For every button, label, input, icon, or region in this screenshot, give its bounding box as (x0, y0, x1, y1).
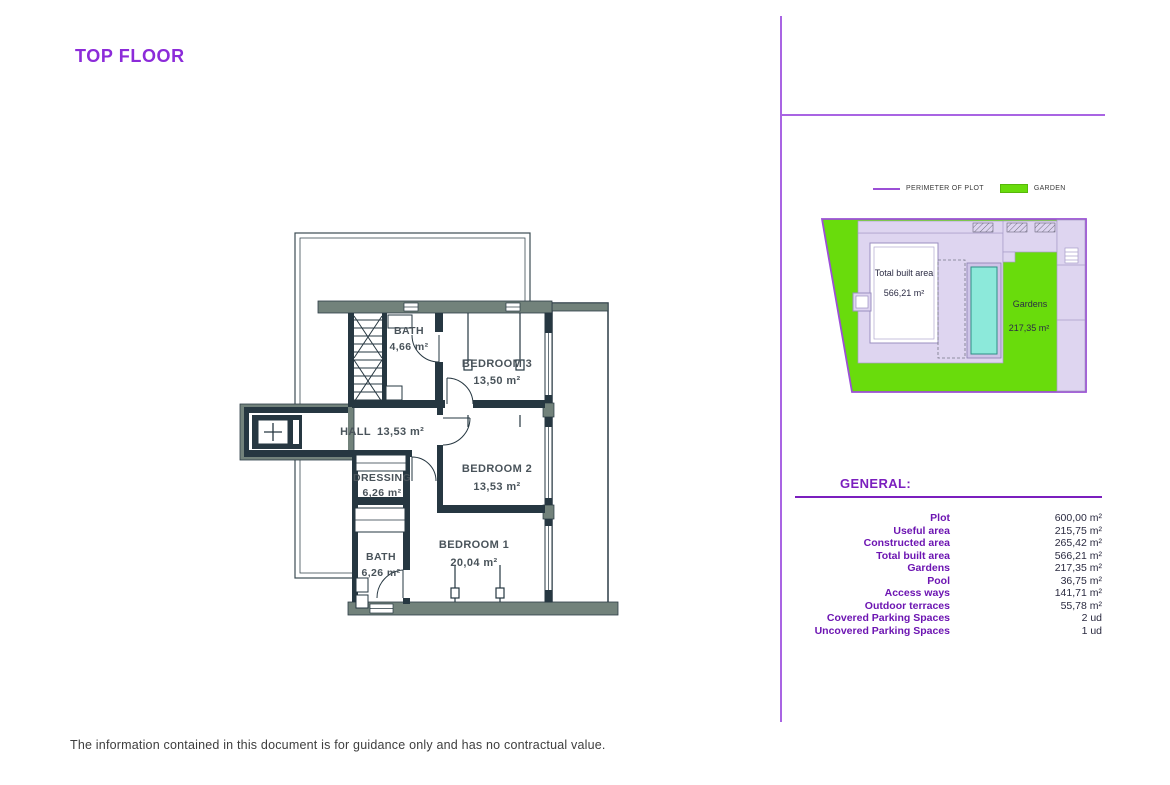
horizontal-divider-line (780, 114, 1105, 116)
garden-rect-swatch (1000, 184, 1028, 193)
row-value: 2 ud (950, 612, 1102, 625)
row-value: 215,75 m² (950, 525, 1102, 538)
window-wall (543, 313, 554, 602)
table-row: Constructed area265,42 m² (795, 537, 1102, 550)
site-plan-legend: PERIMETER OF PLOT GARDEN (873, 184, 1066, 193)
general-rows: Plot600,00 m² Useful area215,75 m² Const… (795, 512, 1102, 637)
table-row: Plot600,00 m² (795, 512, 1102, 525)
page-title: TOP FLOOR (75, 46, 185, 67)
room-area-bedroom3: 13,50 m² (473, 375, 520, 387)
general-heading: GENERAL: (795, 476, 1102, 491)
room-label-hall: HALL (340, 426, 371, 438)
row-label: Outdoor terraces (795, 600, 950, 613)
table-row: Pool36,75 m² (795, 575, 1102, 588)
table-row: Access ways141,71 m² (795, 587, 1102, 600)
row-label: Total built area (795, 550, 950, 563)
table-row: Gardens217,35 m² (795, 562, 1102, 575)
row-value: 566,21 m² (950, 550, 1102, 563)
row-value: 265,42 m² (950, 537, 1102, 550)
room-area-bath-bottom: 6,26 m² (362, 567, 401, 579)
gardens-value: 217,35 m² (1009, 323, 1050, 333)
legend-item-perimeter: PERIMETER OF PLOT (873, 185, 984, 192)
room-area-bedroom1: 20,04 m² (450, 557, 497, 569)
legend-label: GARDEN (1034, 185, 1066, 192)
document-page: { "page": { "title": "TOP FLOOR", "foote… (0, 0, 1170, 785)
room-area-hall: 13,53 m² (377, 426, 424, 438)
row-label: Plot (795, 512, 950, 525)
built-area-value: 566,21 m² (884, 288, 925, 298)
room-area-bath-top: 4,66 m² (390, 341, 429, 353)
row-label: Constructed area (795, 537, 950, 550)
room-label-bath-bottom: BATH (366, 551, 396, 563)
elevator (252, 415, 302, 449)
row-value: 600,00 m² (950, 512, 1102, 525)
general-section: GENERAL: Plot600,00 m² Useful area215,75… (795, 476, 1102, 637)
row-value: 36,75 m² (950, 575, 1102, 588)
table-row: Uncovered Parking Spaces1 ud (795, 625, 1102, 638)
row-label: Useful area (795, 525, 950, 538)
row-label: Access ways (795, 587, 950, 600)
room-label-dressing: DRESSING (353, 472, 411, 484)
hall-wing (240, 404, 354, 460)
site-plan: Total built area 566,21 m² Gardens 217,3… (815, 210, 1095, 400)
perimeter-line-swatch (873, 188, 900, 190)
row-value: 217,35 m² (950, 562, 1102, 575)
room-label-bath-top: BATH (394, 325, 424, 337)
general-heading-rule (795, 496, 1102, 498)
floor-plan: BATH 4,66 m² BEDROOM 3 13,50 m² HALL 13,… (230, 225, 630, 630)
legend-item-garden: GARDEN (1000, 184, 1066, 193)
pool (967, 263, 1001, 358)
pergolas (973, 223, 1055, 232)
row-value: 141,71 m² (950, 587, 1102, 600)
table-row: Covered Parking Spaces2 ud (795, 612, 1102, 625)
table-row: Outdoor terraces55,78 m² (795, 600, 1102, 613)
table-row: Total built area566,21 m² (795, 550, 1102, 563)
row-value: 1 ud (950, 625, 1102, 638)
built-area-label: Total built area (875, 268, 934, 278)
room-area-bedroom2: 13,53 m² (473, 481, 520, 493)
disclaimer-text: The information contained in this docume… (70, 738, 606, 752)
room-area-dressing: 6,26 m² (363, 487, 402, 499)
row-label: Uncovered Parking Spaces (795, 625, 950, 638)
row-label: Gardens (795, 562, 950, 575)
row-label: Pool (795, 575, 950, 588)
row-label: Covered Parking Spaces (795, 612, 950, 625)
gardens-label: Gardens (1013, 299, 1048, 309)
side-terrace (552, 303, 608, 612)
room-label-bedroom1: BEDROOM 1 (439, 539, 509, 551)
room-label-bedroom2: BEDROOM 2 (462, 463, 532, 475)
room-label-bedroom3: BEDROOM 3 (462, 358, 532, 370)
vertical-divider-line (780, 16, 782, 722)
row-value: 55,78 m² (950, 600, 1102, 613)
legend-label: PERIMETER OF PLOT (906, 185, 984, 192)
table-row: Useful area215,75 m² (795, 525, 1102, 538)
